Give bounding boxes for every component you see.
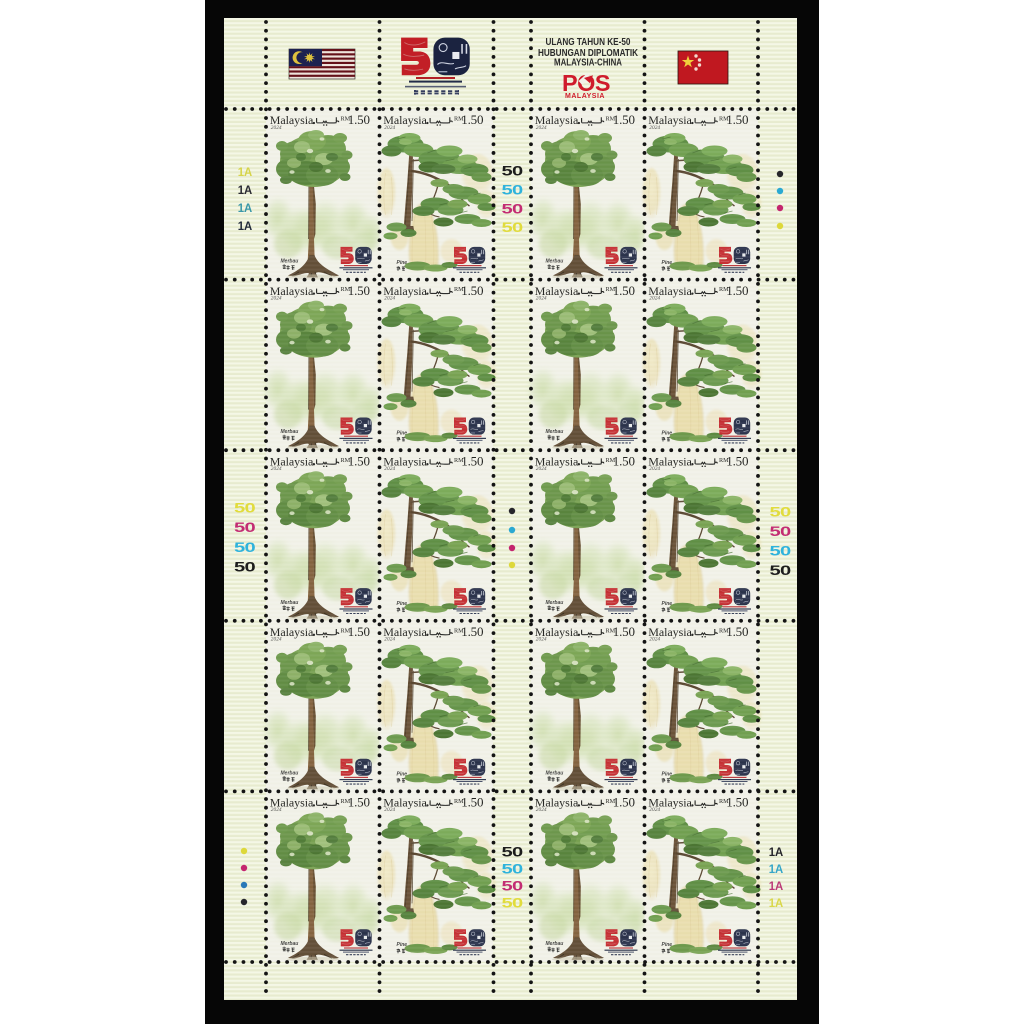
svg-text:50: 50 <box>234 539 256 555</box>
svg-text:50: 50 <box>502 844 524 860</box>
svg-text:1A: 1A <box>238 203 253 215</box>
svg-text:50: 50 <box>770 523 792 539</box>
svg-text:50: 50 <box>502 163 524 179</box>
svg-text:50: 50 <box>234 519 256 535</box>
svg-text:1A: 1A <box>238 185 253 197</box>
svg-text:50: 50 <box>770 543 792 559</box>
svg-text:50: 50 <box>502 878 524 894</box>
svg-text:1A: 1A <box>769 864 784 876</box>
svg-text:50: 50 <box>502 182 524 198</box>
svg-text:1A: 1A <box>769 898 784 910</box>
svg-text:MALAYSIA-CHINA: MALAYSIA-CHINA <box>554 58 622 69</box>
svg-text:1A: 1A <box>238 167 253 179</box>
svg-text:1A: 1A <box>769 847 784 859</box>
svg-text:50: 50 <box>234 500 256 516</box>
svg-text:50: 50 <box>234 559 256 575</box>
svg-text:50: 50 <box>770 562 792 578</box>
svg-text:MALAYSIA: MALAYSIA <box>565 93 605 100</box>
svg-text:50: 50 <box>502 201 524 217</box>
svg-text:1A: 1A <box>238 221 253 233</box>
svg-text:1A: 1A <box>769 881 784 893</box>
svg-text:ULANG TAHUN KE-50: ULANG TAHUN KE-50 <box>546 37 631 48</box>
svg-text:50: 50 <box>502 895 524 911</box>
svg-text:50: 50 <box>770 504 792 520</box>
svg-text:50: 50 <box>502 861 524 877</box>
svg-text:50: 50 <box>502 219 524 235</box>
